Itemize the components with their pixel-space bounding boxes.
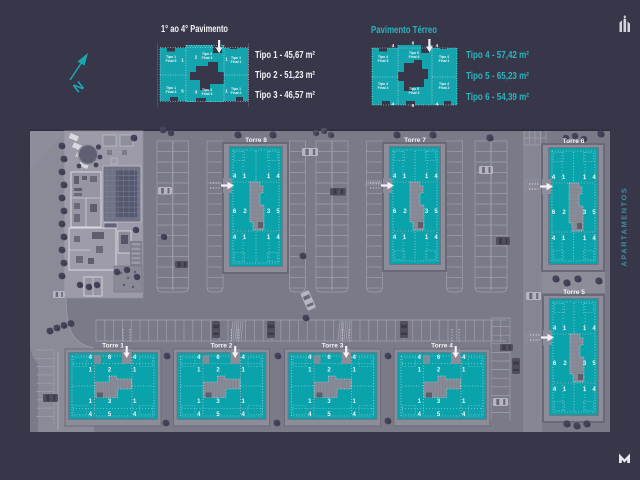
svg-text:Final 3: Final 3: [202, 92, 213, 96]
svg-text:5: 5: [412, 103, 415, 109]
svg-text:Torre 4: Torre 4: [431, 343, 453, 350]
svg-text:1: 1: [181, 58, 184, 64]
svg-text:Tipo 3 - 46,57 m²: Tipo 3 - 46,57 m²: [255, 89, 315, 101]
svg-text:2: 2: [195, 55, 198, 61]
svg-text:4: 4: [436, 102, 439, 108]
svg-text:Torre 2: Torre 2: [211, 343, 233, 350]
svg-text:4: 4: [392, 43, 395, 49]
svg-text:Tipo 2 - 51,23 m²: Tipo 2 - 51,23 m²: [255, 69, 315, 81]
svg-text:3: 3: [195, 90, 198, 96]
svg-text:APARTAMENTOS: APARTAMENTOS: [620, 187, 629, 267]
svg-text:4: 4: [436, 43, 439, 49]
svg-text:Torre 5: Torre 5: [563, 289, 585, 296]
svg-text:Final 6: Final 6: [409, 55, 420, 59]
svg-text:Tipo 6 - 54,39 m²: Tipo 6 - 54,39 m²: [466, 91, 529, 103]
svg-text:5: 5: [181, 89, 184, 95]
svg-text:Final 5: Final 5: [378, 59, 389, 63]
svg-text:Final 4: Final 4: [378, 86, 389, 90]
svg-text:Final 4: Final 4: [202, 56, 213, 60]
svg-text:1° ao 4° Pavimento: 1° ao 4° Pavimento: [161, 24, 228, 35]
svg-text:Tipo 4 - 57,42 m²: Tipo 4 - 57,42 m²: [466, 49, 529, 61]
svg-text:Torre 7: Torre 7: [404, 137, 426, 144]
svg-text:Final 1: Final 1: [439, 59, 450, 63]
svg-text:4: 4: [392, 102, 395, 108]
svg-text:Torre 3: Torre 3: [322, 343, 344, 350]
svg-text:Final 2: Final 2: [439, 86, 450, 90]
svg-text:Torre 8: Torre 8: [245, 137, 267, 144]
svg-text:Torre 1: Torre 1: [102, 343, 124, 350]
svg-text:1: 1: [225, 89, 228, 95]
svg-text:6: 6: [412, 41, 415, 47]
svg-text:Final 3: Final 3: [409, 91, 420, 95]
svg-text:Tipo 1 - 45,67 m²: Tipo 1 - 45,67 m²: [255, 49, 315, 61]
svg-text:Final 2: Final 2: [231, 91, 242, 95]
svg-text:Final 4: Final 4: [166, 90, 177, 94]
svg-text:Final 5: Final 5: [166, 59, 177, 63]
svg-text:Final 1: Final 1: [231, 60, 242, 64]
svg-text:Tipo 5 - 65,23 m²: Tipo 5 - 65,23 m²: [466, 70, 529, 82]
svg-text:Torre 6: Torre 6: [563, 138, 585, 145]
svg-text:Pavimento Térreo: Pavimento Térreo: [371, 25, 437, 36]
svg-text:1: 1: [225, 57, 228, 63]
